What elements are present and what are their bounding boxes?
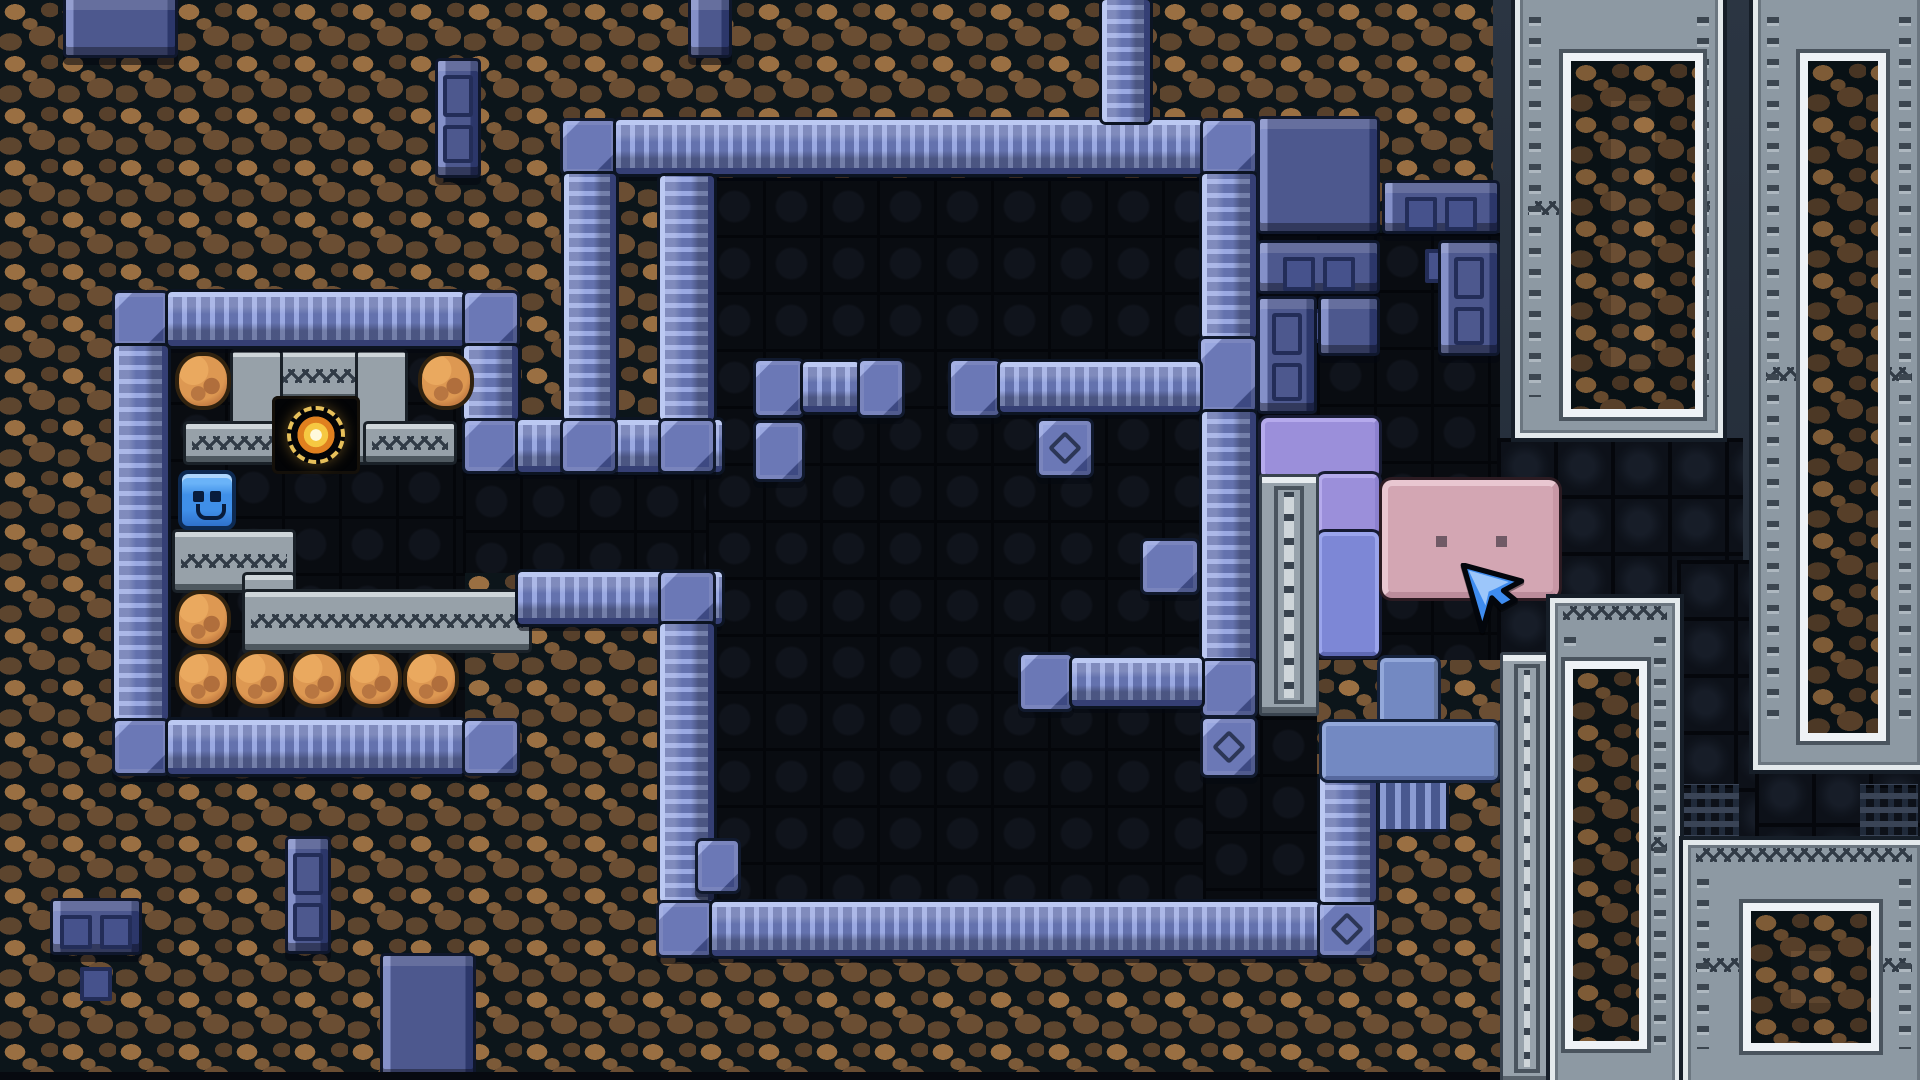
t-piece-bar[interactable] <box>1322 722 1498 780</box>
door-mark <box>1272 313 1302 355</box>
pipe-corner <box>656 900 714 958</box>
window-mark <box>60 915 92 949</box>
metal-frame <box>1753 0 1920 770</box>
metal-frame <box>1550 598 1680 1080</box>
door-block <box>1257 296 1317 414</box>
boulder[interactable] <box>289 650 345 708</box>
pipe-corner <box>1200 118 1258 176</box>
pipe-cap <box>753 358 805 418</box>
pipe-block-diamond <box>1200 716 1258 778</box>
pipe-corner <box>112 718 170 776</box>
door-mark <box>1272 363 1302 401</box>
zigzag-top <box>1696 848 1912 864</box>
pipe-wall <box>1102 0 1150 122</box>
door-mark <box>293 903 323 941</box>
metal-frame <box>1515 0 1723 438</box>
door-mark <box>443 75 473 117</box>
zigzag-groove <box>192 436 273 450</box>
boulder[interactable] <box>175 650 231 708</box>
boulder[interactable] <box>232 650 288 708</box>
golden-orb[interactable] <box>287 406 345 464</box>
metal-frame <box>1683 840 1920 1080</box>
window-mark <box>100 915 132 949</box>
door-mark <box>443 125 473 163</box>
diamond-mark <box>1330 912 1364 946</box>
window-block <box>1382 180 1500 234</box>
pipe-wall <box>712 902 1319 956</box>
boulder[interactable] <box>403 650 459 708</box>
panel-block <box>380 953 476 1080</box>
left-eye-icon <box>193 491 204 502</box>
pipe-corner-diamond <box>1317 900 1377 958</box>
smile-icon <box>196 504 226 520</box>
window-mark <box>1283 257 1315 291</box>
zigzag-groove <box>181 554 287 568</box>
pipe-wall <box>168 292 464 346</box>
door-block <box>285 836 331 954</box>
pipe-wall <box>616 120 1202 174</box>
pipe-wall <box>1320 776 1376 902</box>
pipe-junction <box>1198 336 1258 414</box>
panel-block <box>688 0 732 58</box>
periwinkle-piece[interactable] <box>1318 532 1379 656</box>
vent-brick <box>1677 784 1739 838</box>
player-block[interactable] <box>178 470 236 530</box>
window-mark <box>1405 197 1437 231</box>
dirt-window <box>1743 903 1879 1051</box>
dirt-window <box>1563 53 1703 417</box>
vent-brick <box>1860 784 1918 840</box>
pipe-corner <box>658 418 716 474</box>
left-eye-icon <box>1436 536 1447 547</box>
rivet-strip <box>1899 17 1911 729</box>
alcove-right-wing <box>366 424 454 462</box>
pipe-wall <box>564 174 616 420</box>
door-block <box>435 58 481 178</box>
ledge-long-band <box>245 592 529 650</box>
panel-block <box>1257 116 1380 234</box>
boulder[interactable] <box>175 352 231 410</box>
right-eye-icon <box>210 491 221 502</box>
alcove-left-wing <box>186 424 279 462</box>
rivet-channel <box>1514 664 1541 1073</box>
zigzag-groove <box>251 614 523 628</box>
pipe-corner <box>560 418 618 474</box>
diamond-mark <box>1048 431 1082 465</box>
window-mark <box>1323 257 1355 291</box>
panel-block <box>1318 296 1380 356</box>
boulder[interactable] <box>175 590 231 648</box>
lavender-piece[interactable] <box>1318 474 1379 536</box>
rivet-strip <box>1767 17 1779 729</box>
diamond-mark <box>1212 730 1246 764</box>
pipe-wall <box>114 346 168 720</box>
pipe-corner <box>462 290 520 348</box>
pipe-wall <box>1202 174 1256 338</box>
game-viewport <box>0 0 1920 1080</box>
pipe-block <box>1140 538 1200 595</box>
rivet-strip <box>1899 879 1911 1049</box>
rivet-strip <box>1697 879 1709 1049</box>
ribbed-connector <box>1377 778 1449 832</box>
window-mark <box>1445 197 1477 231</box>
window-block <box>1257 240 1380 294</box>
rivet-strip <box>1654 637 1666 1049</box>
pipe-wall <box>1202 412 1256 662</box>
riveted-column <box>1500 652 1554 1080</box>
mouse-cursor-icon <box>1460 563 1528 635</box>
pipe-cap <box>1018 652 1074 712</box>
pipe-cap <box>857 358 905 418</box>
pipe-wall <box>168 720 464 774</box>
right-eye-icon <box>1496 536 1507 547</box>
pipe-corner <box>560 118 618 176</box>
zigzag-top <box>1563 606 1667 622</box>
pipe-block <box>753 420 805 482</box>
panel-block <box>63 0 178 58</box>
pipe-block <box>695 838 741 894</box>
rivet-strip <box>1529 17 1541 397</box>
dirt-window <box>1565 661 1647 1049</box>
pipe-block-diamond <box>1036 418 1094 478</box>
floor-corridor <box>463 473 722 573</box>
pipe-wall <box>660 176 714 420</box>
door-block <box>1438 240 1500 356</box>
door-mark <box>1454 257 1484 299</box>
floor-big-room <box>706 178 1203 900</box>
window-mark <box>80 967 112 1001</box>
rivet-channel <box>1274 486 1304 704</box>
window-block <box>50 898 142 955</box>
pipe-corner <box>112 290 170 348</box>
zigzag-top <box>1766 0 1912 2</box>
pipe-wall <box>803 362 859 412</box>
pipe-corner <box>658 570 716 626</box>
riveted-column <box>1259 474 1319 716</box>
pipe-corner <box>462 418 520 474</box>
dirt-window <box>1800 53 1886 741</box>
pipe-wall <box>1072 658 1202 706</box>
boulder[interactable] <box>346 650 402 708</box>
pipe-corner <box>462 718 520 776</box>
door-mark <box>1454 307 1484 345</box>
door-mark <box>293 853 323 895</box>
screen-bottom-strip <box>0 1072 1500 1080</box>
pipe-junction <box>1200 658 1258 718</box>
lavender-piece[interactable] <box>1261 418 1379 478</box>
pipe-cap <box>948 358 1002 418</box>
boulder[interactable] <box>418 352 474 410</box>
zigzag-top <box>1528 0 1710 2</box>
zigzag-groove <box>372 436 448 450</box>
t-piece-stem[interactable] <box>1380 658 1438 724</box>
pipe-wall <box>1000 362 1200 412</box>
